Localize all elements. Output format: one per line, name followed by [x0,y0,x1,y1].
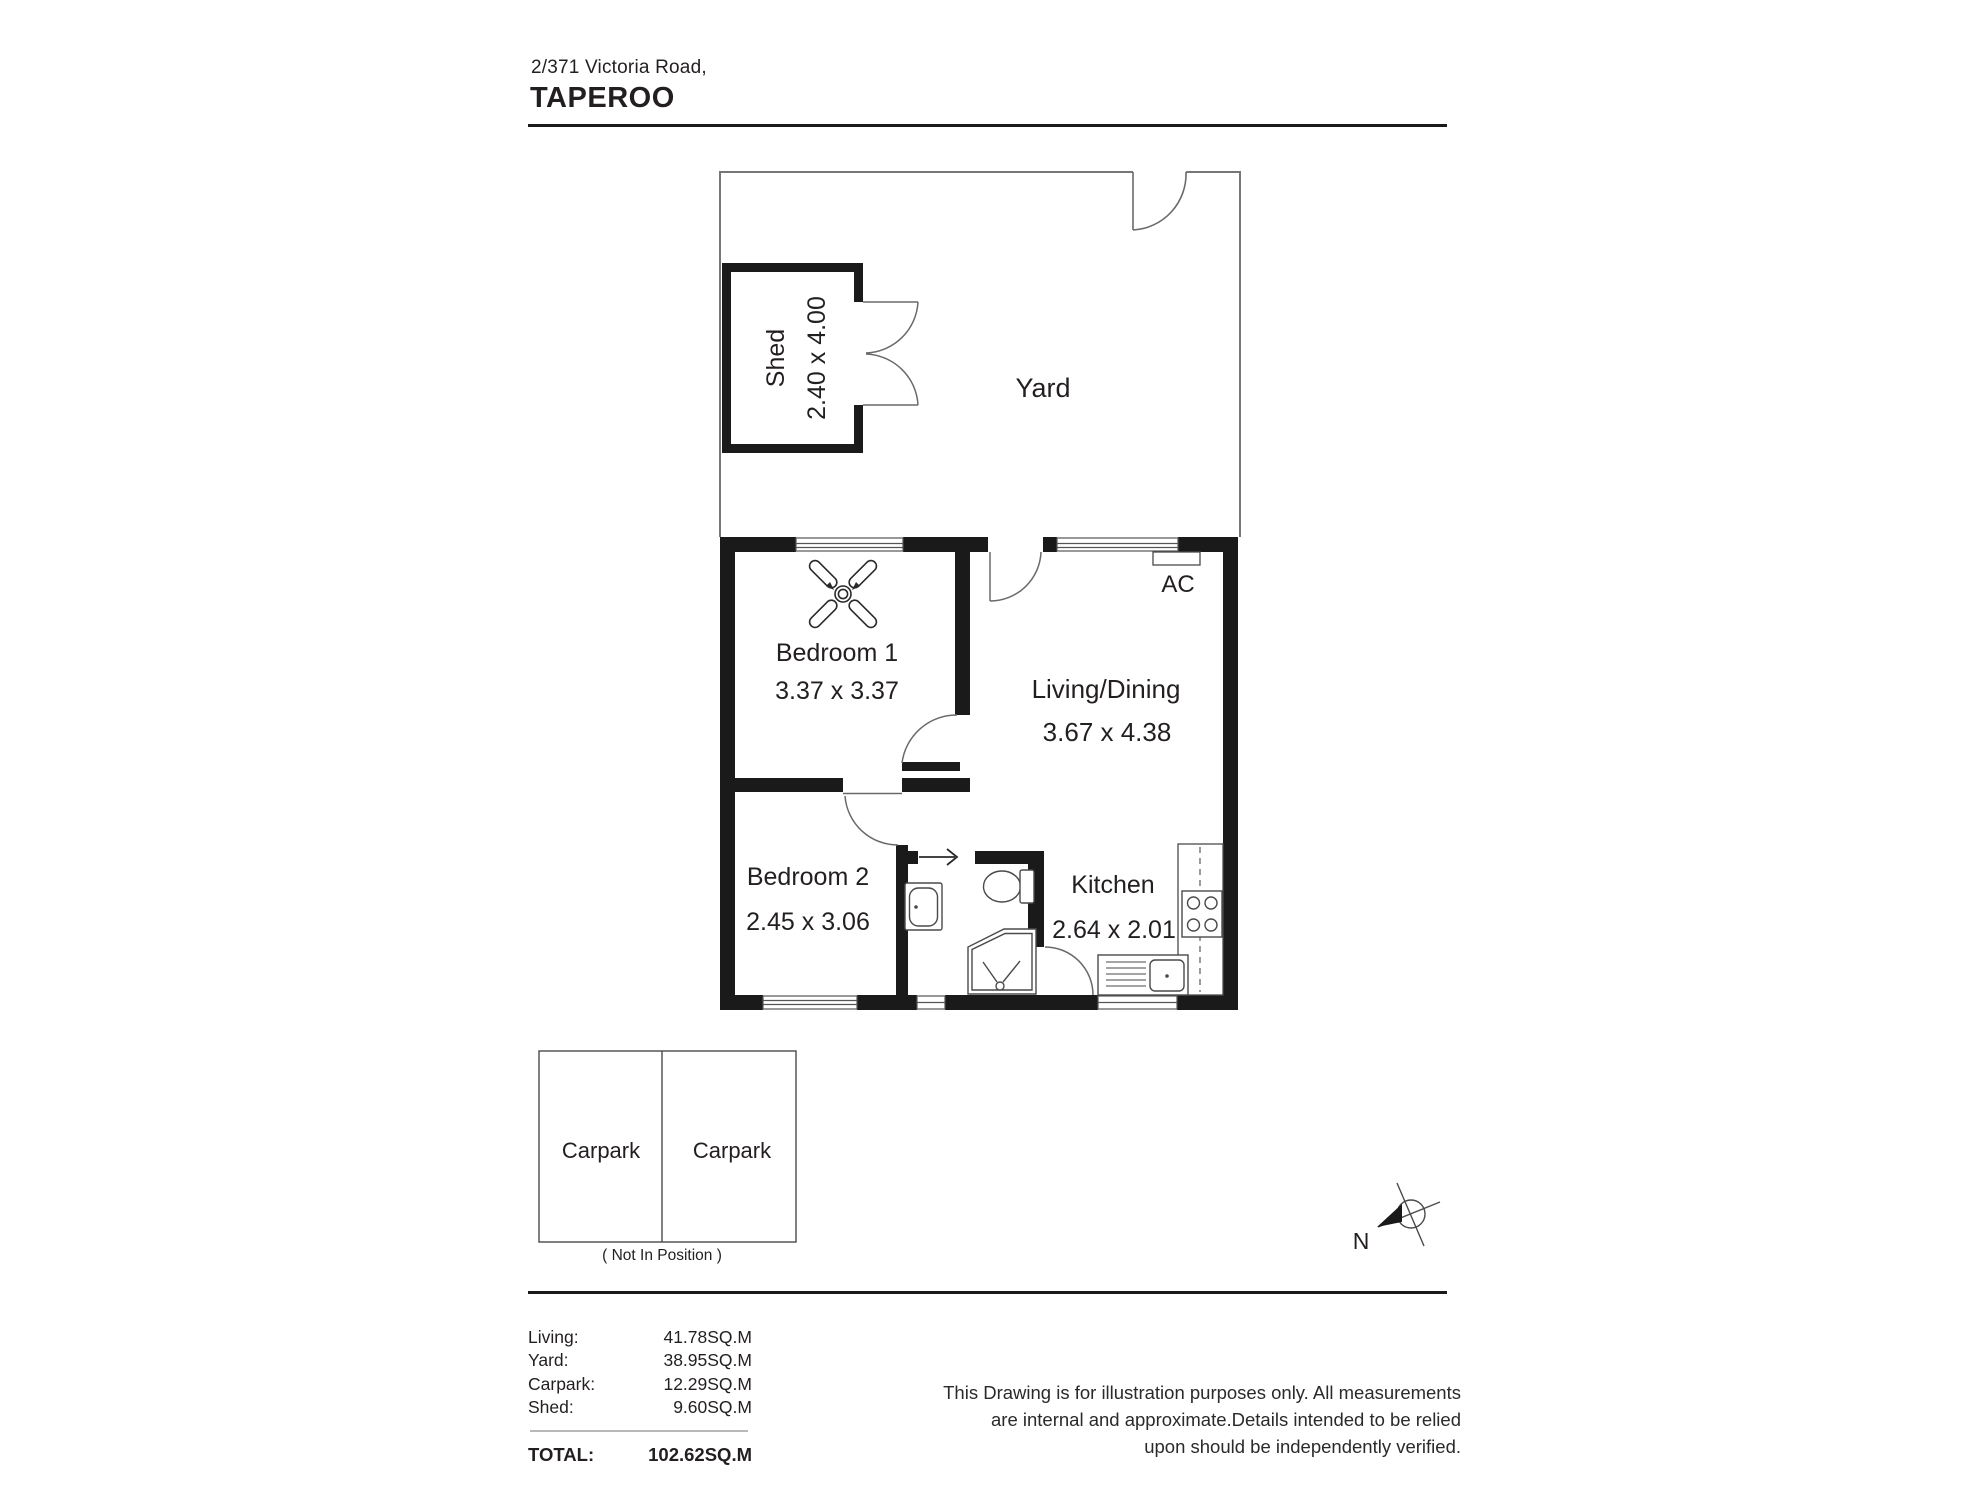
shed-double-door [863,302,918,405]
disclaimer-line: This Drawing is for illustration purpose… [901,1379,1461,1406]
footer-rule [528,1291,1447,1294]
area-row-yard: Yard: 38.95SQ.M [528,1349,752,1372]
living-window [1057,538,1178,551]
area-label: Shed: [528,1396,574,1419]
entry-arrow-icon [919,849,957,865]
carpark-right-label: Carpark [693,1138,772,1163]
carpark-left-label: Carpark [562,1138,641,1163]
bathroom-door [1045,947,1093,995]
ac-unit [1153,552,1200,565]
area-row-carpark: Carpark: 12.29SQ.M [528,1373,752,1396]
area-value: 9.60SQ.M [673,1396,752,1419]
area-label: Living: [528,1326,579,1349]
shed-dims: 2.40 x 4.00 [803,296,831,420]
living-label: Living/Dining [1032,674,1181,704]
kitchen-label: Kitchen [1071,871,1154,899]
shower-icon [968,929,1036,994]
living-dims: 3.67 x 4.38 [1043,717,1172,747]
yard-label: Yard [1015,373,1070,403]
area-row-shed: Shed: 9.60SQ.M [528,1396,752,1419]
total-label: TOTAL: [528,1444,594,1466]
area-schedule: Living: 41.78SQ.M Yard: 38.95SQ.M Carpar… [528,1326,752,1419]
area-value: 12.29SQ.M [663,1373,752,1396]
floorplan-drawing: Shed 2.40 x 4.00 Yard [0,0,1987,1500]
toilet-icon [984,870,1035,903]
carpark-note: ( Not In Position ) [602,1247,722,1264]
area-row-living: Living: 41.78SQ.M [528,1326,752,1349]
area-value: 41.78SQ.M [663,1326,752,1349]
kitchen-window [1098,996,1177,1009]
bedroom2-dims: 2.45 x 3.06 [746,908,870,936]
disclaimer-line: upon should be independently verified. [901,1433,1461,1460]
north-label: N [1353,1228,1370,1254]
bedroom2-label: Bedroom 2 [747,863,869,891]
kitchen-sink-icon [1098,955,1188,995]
total-divider [530,1430,748,1432]
yard-gate-door [1133,172,1186,230]
disclaimer-text: This Drawing is for illustration purpose… [901,1379,1461,1460]
bedroom1-door [902,715,957,763]
shed-label: Shed [762,329,790,387]
area-label: Carpark: [528,1373,595,1396]
bedroom2-window [763,996,857,1009]
kitchen-dims: 2.64 x 2.01 [1052,916,1176,944]
total-value: 102.62SQ.M [648,1444,752,1466]
disclaimer-line: are internal and approximate.Details int… [901,1406,1461,1433]
bedroom1-dims: 3.37 x 3.37 [775,677,899,705]
bedroom2-door [843,794,902,846]
area-label: Yard: [528,1349,569,1372]
bedroom1-window [796,538,903,551]
north-compass-icon [1377,1183,1440,1246]
bathroom-sink-icon [905,883,942,930]
living-yard-door [990,552,1041,601]
floorplan-page: 2/371 Victoria Road, TAPEROO Shed 2.40 [0,0,1987,1500]
bedroom1-label: Bedroom 1 [776,639,898,667]
cooktop-icon [1182,891,1222,937]
bathroom-window [917,996,945,1009]
ceiling-fan-icon [807,558,878,629]
area-total-row: TOTAL: 102.62SQ.M [528,1444,752,1466]
area-value: 38.95SQ.M [663,1349,752,1372]
ac-label: AC [1161,571,1194,598]
